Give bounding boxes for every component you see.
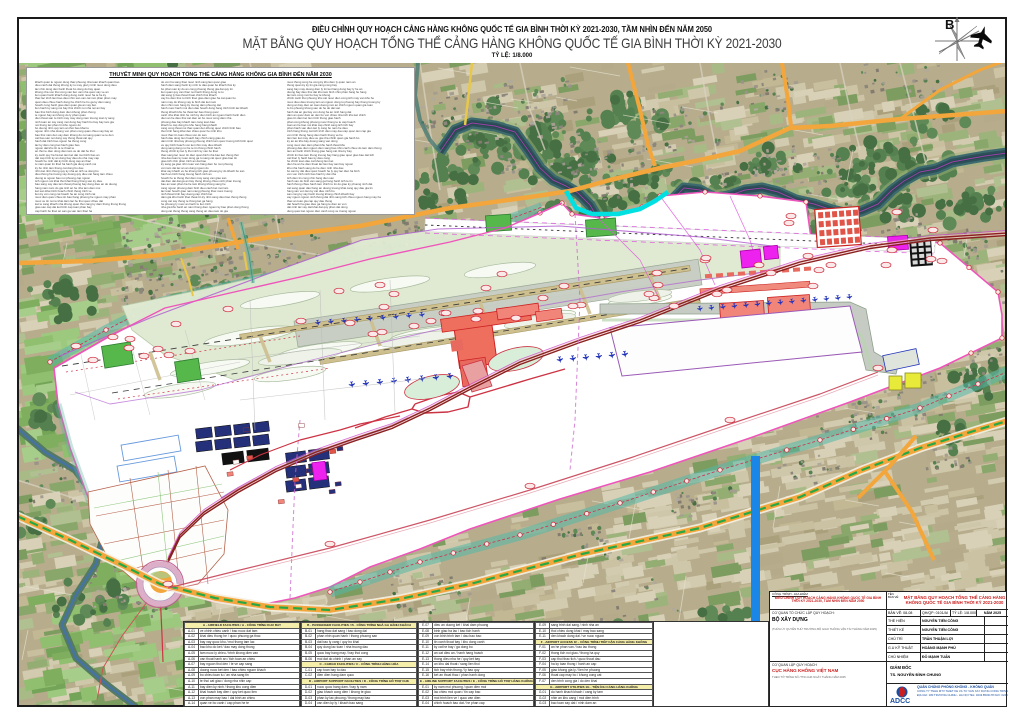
- svg-text:B: B: [945, 17, 954, 32]
- svg-text:ADCC: ADCC: [890, 698, 910, 704]
